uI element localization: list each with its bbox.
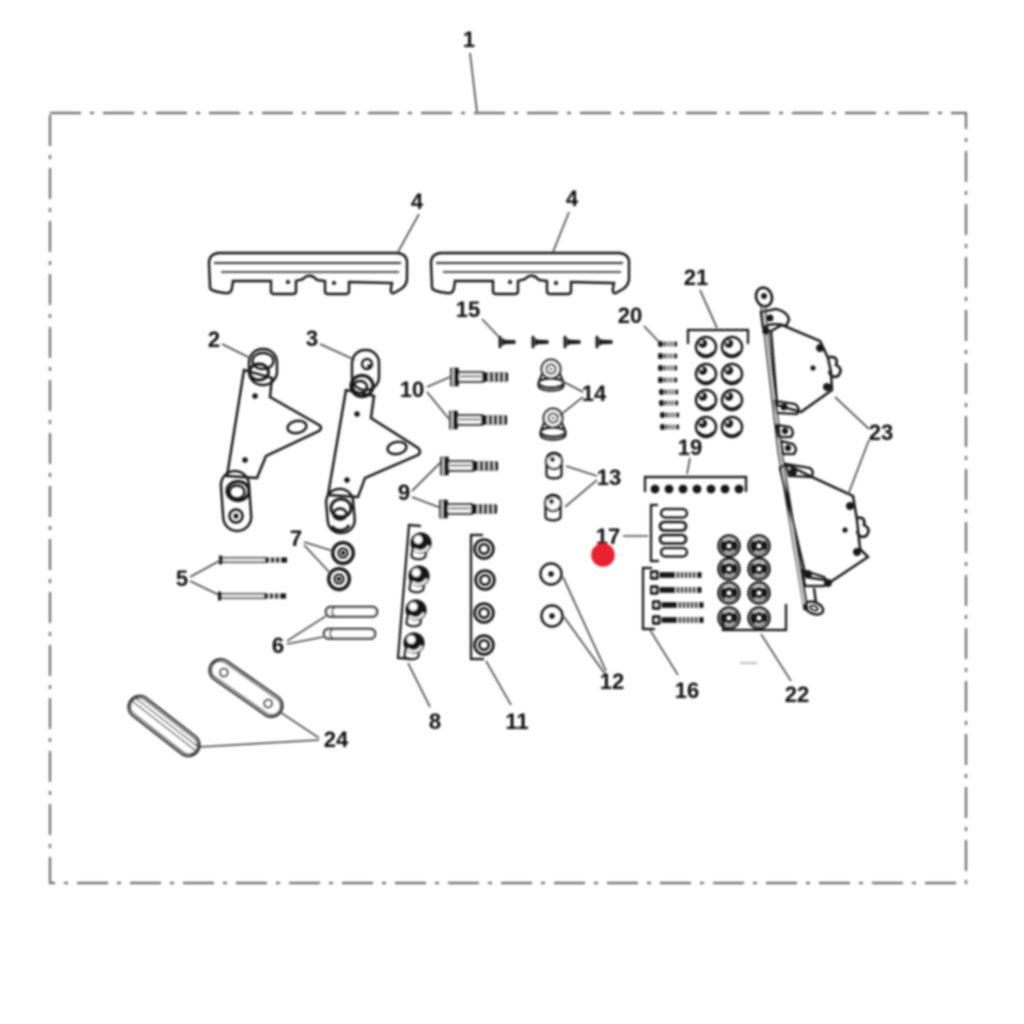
svg-text:14: 14 (582, 381, 607, 406)
svg-text:16: 16 (675, 678, 699, 703)
svg-text:4: 4 (566, 186, 579, 211)
svg-text:1: 1 (463, 27, 475, 52)
svg-text:7: 7 (290, 526, 302, 551)
svg-text:10: 10 (400, 377, 424, 402)
svg-text:20: 20 (618, 303, 642, 328)
svg-text:4: 4 (411, 189, 424, 214)
svg-text:24: 24 (324, 727, 349, 752)
svg-text:11: 11 (505, 709, 528, 734)
svg-text:2: 2 (208, 327, 220, 352)
svg-text:23: 23 (869, 420, 893, 445)
svg-text:8: 8 (429, 709, 441, 734)
svg-text:3: 3 (306, 326, 318, 351)
svg-text:22: 22 (785, 682, 809, 707)
svg-text:21: 21 (684, 265, 708, 290)
svg-text:9: 9 (398, 480, 410, 505)
svg-text:6: 6 (272, 633, 284, 658)
svg-text:19: 19 (678, 435, 702, 460)
svg-text:13: 13 (597, 465, 621, 490)
svg-text:15: 15 (456, 297, 480, 322)
svg-text:5: 5 (176, 566, 188, 591)
